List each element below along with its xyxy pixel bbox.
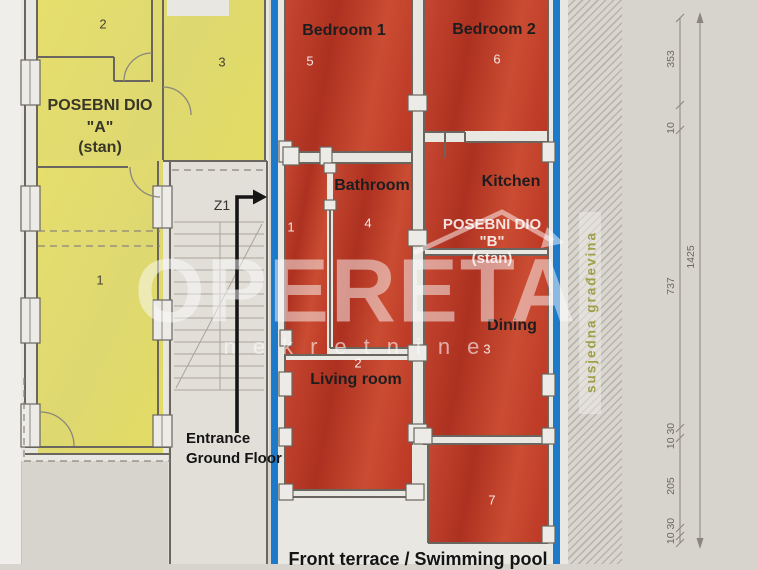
neighbor-building-label: susjedna građevina [584, 231, 599, 393]
unit-b-title-line1: POSEBNI DIO [443, 216, 541, 233]
room-number-1: 1 [287, 220, 294, 235]
dim-seg-353: 353 [665, 50, 677, 68]
dim-seg-10-30-lower: 10 30 [665, 518, 677, 544]
dim-seg-737: 737 [665, 277, 677, 295]
dim-seg-10: 10 [665, 122, 677, 134]
watermark-brand: OPERETA [135, 241, 577, 344]
dim-total-1425: 1425 [685, 245, 697, 268]
room-number-7: 7 [488, 493, 495, 508]
entrance-label-line1: Entrance [186, 430, 250, 447]
room-number-6: 6 [493, 52, 500, 67]
label-living-room: Living room [310, 371, 402, 389]
watermark-subtitle: nekretnine [224, 334, 497, 360]
dimension-lines [676, 14, 700, 547]
floor-plan-page: { "unit_a": { "title_1": "POSEBNI DIO", … [0, 0, 758, 564]
dim-seg-10-30-upper: 10 30 [665, 423, 677, 449]
room-number-a1: 1 [96, 273, 103, 288]
front-terrace-label: Front terrace / Swimming pool [288, 549, 547, 570]
entrance-label-line2: Ground Floor [186, 450, 282, 467]
room-number-a2: 2 [99, 17, 106, 32]
room-number-a3: 3 [218, 55, 225, 70]
dim-seg-205: 205 [665, 477, 677, 495]
unit-a-title-line2: "A" [87, 117, 114, 138]
stair-mark-z1: Z1 [214, 197, 230, 213]
unit-a-title-line3: (stan) [78, 137, 122, 158]
label-bathroom: Bathroom [334, 177, 410, 195]
room-number-4: 4 [364, 216, 371, 231]
label-kitchen: Kitchen [482, 173, 541, 191]
label-bedroom1: Bedroom 1 [302, 22, 386, 40]
room-number-5: 5 [306, 54, 313, 69]
label-bedroom2: Bedroom 2 [452, 21, 536, 39]
unit-a-title-line1: POSEBNI DIO [48, 95, 153, 116]
